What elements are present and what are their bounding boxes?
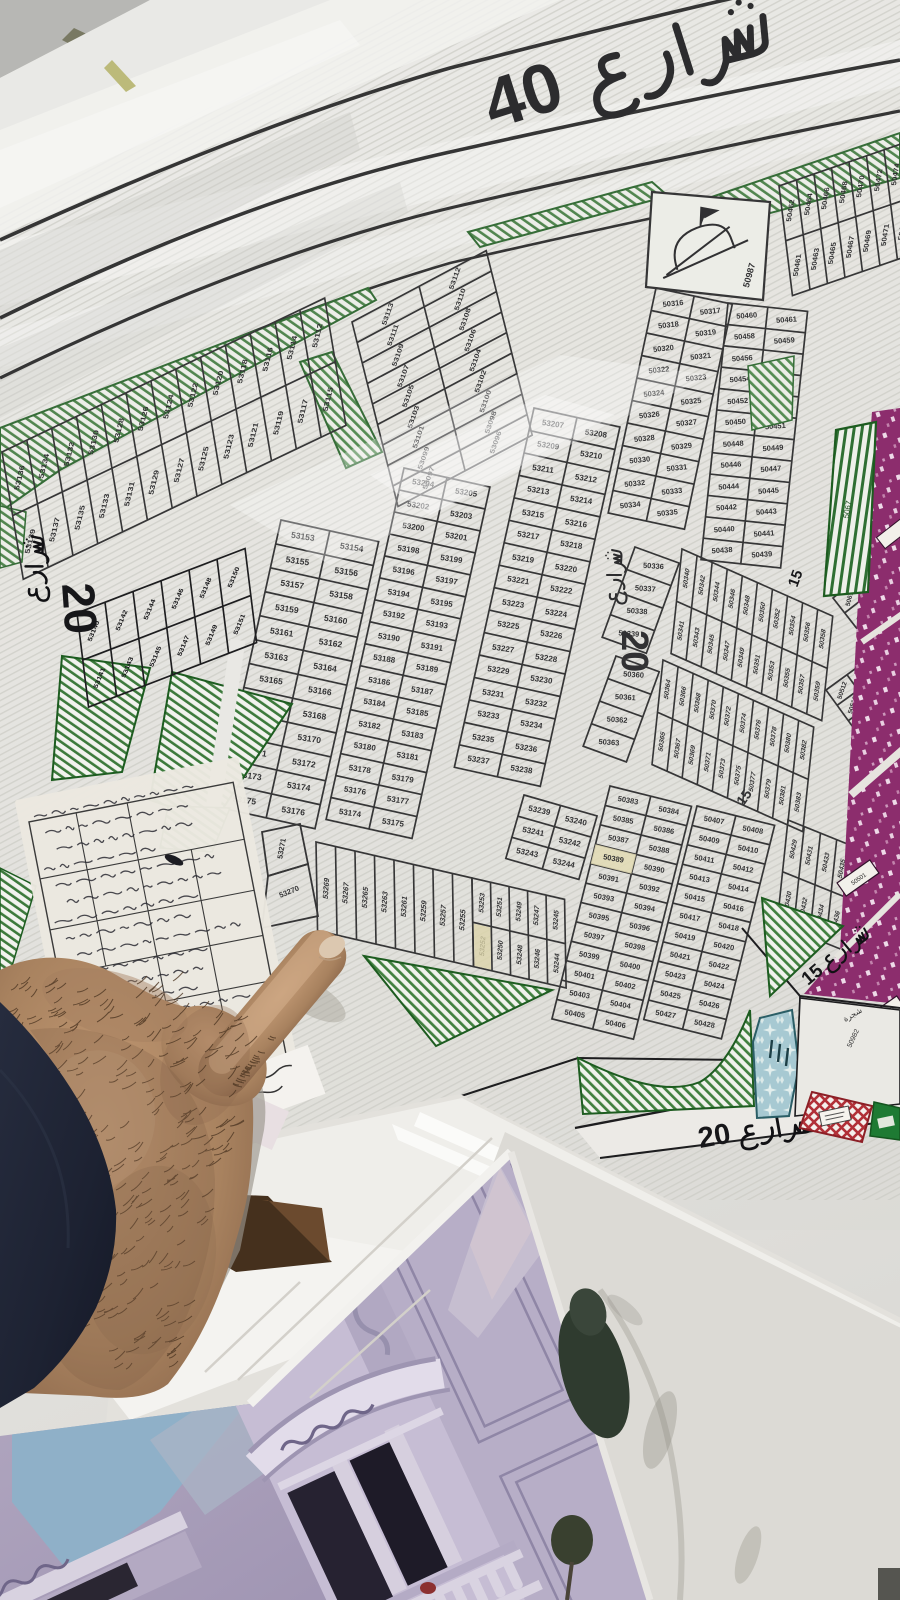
svg-text:20: 20 (52, 581, 107, 636)
svg-text:20: 20 (696, 1118, 733, 1155)
